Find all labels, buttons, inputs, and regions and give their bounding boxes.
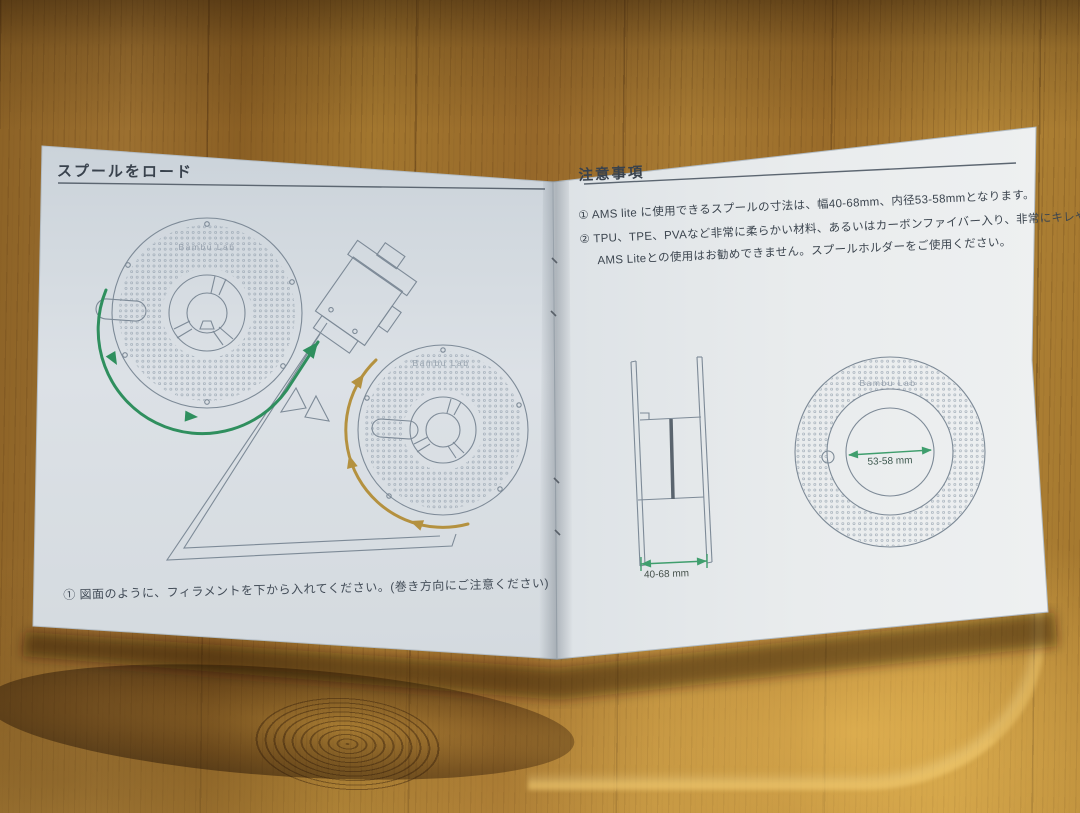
booklet-artwork: Bambu Lab Bambu Lab xyxy=(0,0,1080,813)
photo-scene: Bambu Lab Bambu Lab xyxy=(0,0,1080,813)
width-dimension-label: 40-68 mm xyxy=(644,568,689,581)
right-page-heading: 注意事項 xyxy=(578,161,645,185)
inner-diameter-label: 53-58 mm xyxy=(858,455,922,468)
spool-brand-label: Bambu Lab xyxy=(413,358,470,368)
spool-brand-label: Bambu Lab xyxy=(179,242,236,252)
left-page-heading: スプールをロード xyxy=(57,160,193,182)
spool-brand-label: Bambu Lab xyxy=(860,378,917,388)
